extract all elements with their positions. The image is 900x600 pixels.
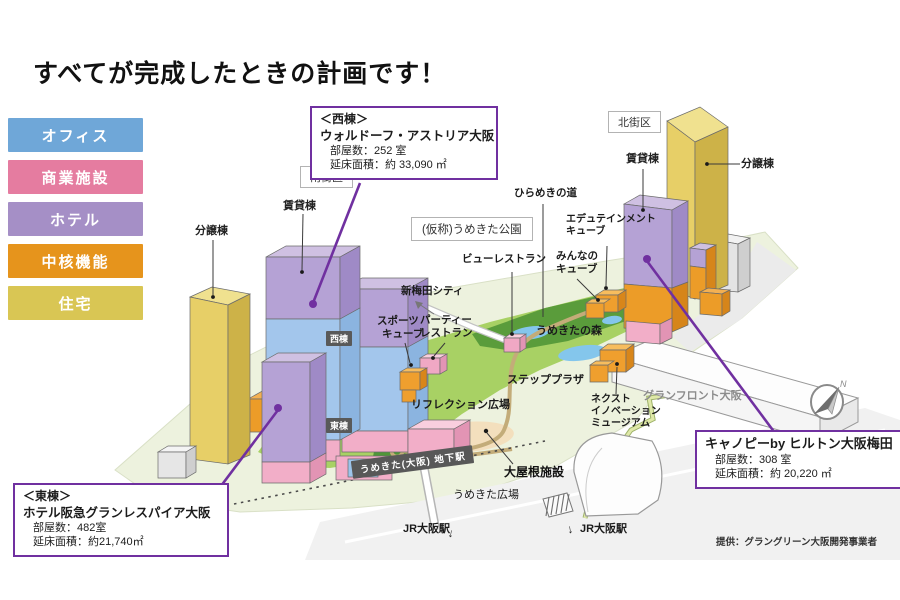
legend: オフィス 商業施設 ホテル 中核機能 住宅 (8, 118, 143, 328)
label-condo-south: 分譲棟 (195, 222, 228, 238)
label-step-plaza: ステッププラザ (507, 374, 584, 387)
callout-canopy-rooms: 部屋数：308 室 (705, 453, 895, 467)
compass-n-label: N (840, 379, 847, 389)
label-jr-osaka-left: JR大阪駅 (403, 523, 450, 536)
legend-item-office: オフィス (8, 118, 143, 152)
label-roof-facility: 大屋根施設 (504, 463, 564, 480)
label-sports-cube: スポーツ キューブ (377, 315, 423, 340)
label-party-restaurant: パーティー レストラン (420, 314, 473, 339)
label-edutainment-cube: エデュテインメント キューブ (566, 214, 656, 238)
label-shin-umeda: 新梅田シティ (401, 285, 463, 298)
callout-west-area: 延床面積：約 33,090 ㎡ (320, 158, 488, 172)
callout-west-wing: ＜西棟＞ ウォルドーフ・アストリア大阪 部屋数：252 室 延床面積：約 33,… (310, 106, 498, 180)
legend-item-residence: 住宅 (8, 286, 143, 320)
legend-item-commerce: 商業施設 (8, 160, 143, 194)
label-condo-north: 分譲棟 (741, 155, 774, 171)
badge-west-wing: 西棟 (326, 331, 352, 346)
credit-text: 提供：グラングリーン大阪開発事業者 (716, 534, 877, 548)
callout-east-rooms: 部屋数：482室 (23, 521, 219, 535)
callout-east-wing: ＜東棟＞ ホテル阪急グランレスパイア大阪 部屋数：482室 延床面積：約21,7… (13, 483, 229, 557)
condo-tower-south (190, 287, 250, 464)
label-umekita-forest: うめきたの森 (536, 325, 602, 338)
gray-cube (158, 446, 196, 478)
label-jr-osaka-right: JR大阪駅 (580, 523, 627, 536)
callout-west-rooms: 部屋数：252 室 (320, 144, 488, 158)
label-view-restaurant: ビューレストラン (462, 253, 546, 266)
label-grand-front: グランフロント大阪 (643, 387, 742, 403)
badge-east-wing: 東棟 (326, 418, 352, 433)
label-rental-south: 賃貸棟 (283, 197, 316, 213)
label-hirameki-road: ひらめきの道 (514, 187, 577, 200)
callout-canopy-name: キャノピーby ヒルトン大阪梅田 (705, 436, 895, 453)
callout-canopy-area: 延床面積：約 20,220 ㎡ (705, 467, 895, 481)
view-restaurant-cube (504, 334, 526, 352)
label-rental-north: 賃貸棟 (626, 150, 659, 166)
page-title: すべてが完成したときの計画です！ (33, 54, 446, 90)
legend-item-hotel: ホテル (8, 202, 143, 236)
callout-west-name: ウォルドーフ・アストリア大阪 (320, 128, 488, 144)
callout-east-area: 延床面積：約21,740㎡ (23, 535, 219, 549)
park-name-box: (仮称)うめきた公園 (411, 217, 533, 241)
callout-east-name: ホテル阪急グランレスパイア大阪 (23, 505, 219, 521)
slide: N すべてが完成したときの計画です！ オフィス 商業施設 ホテル 中核機能 住宅… (0, 0, 900, 600)
label-minna-cube: みんなの キューブ (556, 250, 598, 275)
district-label-north: 北街区 (608, 111, 661, 133)
legend-item-core: 中核機能 (8, 244, 143, 278)
callout-west-heading: ＜西棟＞ (320, 112, 488, 128)
callout-east-heading: ＜東棟＞ (23, 489, 219, 505)
label-umekita-plaza: うめきた広場 (453, 489, 519, 502)
label-reflection-plaza: リフレクション広場 (411, 399, 510, 412)
callout-canopy: キャノピーby ヒルトン大阪梅田 部屋数：308 室 延床面積：約 20,220… (695, 430, 900, 489)
